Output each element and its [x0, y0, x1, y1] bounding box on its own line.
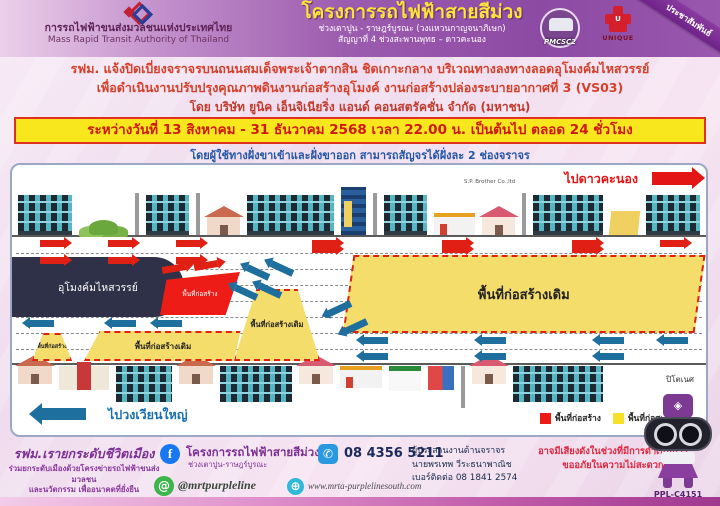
building-icon: [220, 366, 292, 402]
soi-sign-icon: [461, 366, 465, 408]
building-icon: [18, 195, 72, 235]
house-icon: [472, 366, 506, 384]
building-icon: [646, 195, 700, 235]
building-row-top: [18, 185, 700, 235]
unique-logo-text: UNIQUE: [596, 34, 640, 42]
coordinator-phone: เบอร์ติดต่อ 08 1841 2574: [412, 472, 527, 486]
blue-arrow-icon: [482, 353, 506, 360]
announcement-line-2: เพื่อดำเนินงานปรับปรุงคุณภาพดินงานก่อสร้…: [0, 79, 720, 98]
red-arrow-icon: [572, 246, 596, 253]
tagline-main: รฟม.เรายกระดับชีวิตเมือง: [4, 444, 164, 464]
pmcsc-logo-text: PMCSC2: [544, 38, 576, 46]
legend-red-swatch: [540, 413, 551, 424]
blue-arrow-icon: [664, 337, 688, 344]
social-handle: @mrtpurpleline: [178, 478, 256, 493]
blue-arrow-icon: [112, 320, 136, 327]
house-icon: [299, 366, 333, 384]
line-at-icon: @: [154, 476, 174, 496]
facebook-page-sub: ช่วงเตาปูน-ราษฎร์บูรณะ: [188, 459, 267, 471]
mascot-eye-icon: [679, 423, 702, 446]
blue-arrow-icon: [600, 353, 624, 360]
coordinator-title: ผู้ประสานงานด้านจราจร: [412, 445, 527, 459]
construction-zone-small: พื้นที่ก่อสร้าง: [32, 333, 72, 361]
sp-brother-label: S.P. Brother Co.,ltd: [464, 179, 515, 185]
house-icon: [482, 217, 515, 235]
school-icon: [59, 366, 109, 390]
house-icon: [18, 366, 52, 384]
red-arrow-icon: [660, 240, 684, 247]
traffic-announcement-poster: การรถไฟฟ้าขนส่งมวลชนแห่งประเทศไทย Mass R…: [0, 0, 720, 506]
office-building-icon: [341, 187, 366, 235]
existing-construction-zone: พื้นที่ก่อสร้างเดิม: [84, 331, 242, 361]
place-label-right: ปิโตเนศ: [666, 373, 694, 386]
closure-zone-label: พื้นที่ก่อสร้าง: [182, 289, 217, 299]
mascot-skirt-icon: [658, 464, 698, 478]
red-arrow-icon: [312, 246, 336, 253]
mrta-logo-icon: [117, 3, 161, 21]
red-arrow-icon: [108, 240, 132, 247]
building-row-bottom: [18, 366, 700, 410]
soi-sign-icon: [373, 193, 377, 235]
red-arrow-icon: [40, 240, 64, 247]
unique-flower-icon: U: [605, 6, 631, 32]
mascot-body-icon: [661, 452, 695, 464]
unique-logo: U UNIQUE: [596, 6, 640, 42]
blue-arrow-icon: [600, 337, 624, 344]
blue-arrow-icon: [364, 353, 388, 360]
red-arrow-icon: [442, 246, 466, 253]
bank-icon: [608, 211, 640, 235]
building-icon: [146, 195, 189, 235]
red-arrow-icon: [108, 257, 132, 264]
legend-closure-label: พื้นที่ก่อสร้าง: [555, 411, 601, 425]
blue-arrow-icon: [364, 337, 388, 344]
mascot-legs-icon: [663, 478, 693, 488]
mrta-robot-mascot: PPL-C4151: [640, 392, 716, 500]
coordinator-block: ผู้ประสานงานด้านจราจร นายพรเทพ วีระธนาพา…: [412, 445, 527, 486]
tagline-block: รฟม.เรายกระดับชีวิตเมือง ร่วมยกระดับเมือ…: [4, 444, 164, 496]
blue-arrow-icon: [30, 320, 54, 327]
footer: รฟม.เรายกระดับชีวิตเมือง ร่วมยกระดับเมือ…: [0, 438, 720, 506]
building-icon: [384, 195, 427, 235]
bottom-gradient-bar: [0, 497, 720, 506]
blue-arrow-icon: [482, 337, 506, 344]
blue-arrow-icon: [158, 320, 182, 327]
period-banner: ระหว่างวันที่ 13 สิงหาคม - 31 ธันวาคม 25…: [14, 117, 706, 144]
nt-building-icon: [428, 366, 454, 390]
direction-right-arrow-icon: [652, 172, 692, 185]
tree-icon: [89, 220, 118, 235]
mascot-head-icon: [644, 417, 712, 451]
title-block: โครงการรถไฟฟ้าสายสีม่วง ช่วงเตาปูน - ราษ…: [278, 2, 546, 46]
mascot-code: PPL-C4151: [640, 490, 716, 499]
coordinator-name: นายพรเทพ วีระธนาพาณิช: [412, 459, 527, 473]
house-icon: [179, 366, 213, 384]
tunnel-label: อุโมงค์มไหสวรรย์: [58, 279, 138, 296]
pr-ribbon: ประชาสัมพันธ์: [629, 0, 720, 64]
lanes-note: โดยผู้ใช้ทางฝั่งขาเข้าและฝั่งขาออก สามาร…: [0, 146, 720, 164]
project-subtitle-1: ช่วงเตาปูน - ราษฎร์บูรณะ (วงแหวนกาญจนาภิ…: [278, 24, 546, 35]
legend-yellow-swatch: [613, 413, 624, 424]
existing-zone-label: พื้นที่ก่อสร้างเดิม: [251, 319, 304, 331]
globe-icon: ⊕: [287, 478, 304, 495]
existing-construction-zone: พื้นที่ก่อสร้างเดิม: [234, 289, 320, 361]
mascot-badge-icon: [661, 392, 695, 420]
header-bar: การรถไฟฟ้าขนส่งมวลชนแห่งประเทศไทย Mass R…: [0, 0, 720, 57]
soi-sign-icon: [196, 193, 200, 235]
gas-station-icon: [340, 366, 382, 388]
tagline-sub-2: และนวัตกรรม เพื่ออนาคตที่ยั่งยืน: [4, 485, 164, 496]
building-icon: [247, 195, 334, 235]
agency-name-en: Mass Rapid Transit Authority of Thailand: [6, 35, 271, 46]
building-icon: [116, 366, 172, 402]
announcement-block: รฟม. แจ้งปิดเบี่ยงจราจรบนถนนสมเด็จพระเจ้…: [0, 60, 720, 116]
project-title: โครงการรถไฟฟ้าสายสีม่วง: [278, 2, 546, 24]
building-icon: [513, 366, 603, 402]
legend-item-closure: พื้นที่ก่อสร้าง: [540, 411, 601, 425]
agency-block: การรถไฟฟ้าขนส่งมวลชนแห่งประเทศไทย Mass R…: [6, 3, 271, 46]
red-arrow-icon: [40, 257, 64, 264]
red-arrow-icon: [176, 240, 200, 247]
announcement-line-1: รฟม. แจ้งปิดเบี่ยงจราจรบนถนนสมเด็จพระเจ้…: [0, 60, 720, 79]
gas-station-icon: [434, 213, 475, 235]
announcement-line-3: โดย บริษัท ยูนิค เอ็นจิเนียริ่ง แอนด์ คอ…: [0, 98, 720, 116]
house-icon: [207, 217, 240, 235]
tagline-sub-1: ร่วมยกระดับเมืองด้วยโครงข่ายรถไฟฟ้าขนส่ง…: [4, 464, 164, 485]
pmcsc-logo-icon: PMCSC2: [540, 8, 580, 48]
soi-sign-icon: [135, 193, 139, 235]
construction-zone-label: พื้นที่ก่อสร้าง: [37, 343, 67, 351]
blue-arrow-icon: [270, 260, 295, 276]
website-url: www.mrta-purplelinesouth.com: [308, 481, 421, 491]
existing-zone-label: พื้นที่ก่อสร้างเดิม: [135, 340, 191, 353]
phone-icon: ✆: [318, 444, 338, 464]
facebook-icon: f: [160, 444, 180, 464]
convenience-store-icon: [389, 366, 421, 391]
soi-sign-icon: [522, 193, 526, 235]
existing-zone-label: พื้นที่ก่อสร้างเดิม: [478, 284, 570, 305]
road-edge-bottom: [12, 363, 706, 365]
existing-construction-zone: พื้นที่ก่อสร้างเดิม: [343, 255, 706, 333]
project-subtitle-2: สัญญาที่ 4 ช่วงสะพานพุทธ – ดาวคะนอง: [278, 35, 546, 46]
tunnel-zone: อุโมงค์มไหสวรรย์: [12, 257, 184, 317]
building-icon: [533, 195, 603, 235]
mascot-eye-icon: [654, 423, 677, 446]
traffic-diagram: ไปดาวคะนอง S.P. Brother Co.,ltd: [10, 163, 708, 437]
